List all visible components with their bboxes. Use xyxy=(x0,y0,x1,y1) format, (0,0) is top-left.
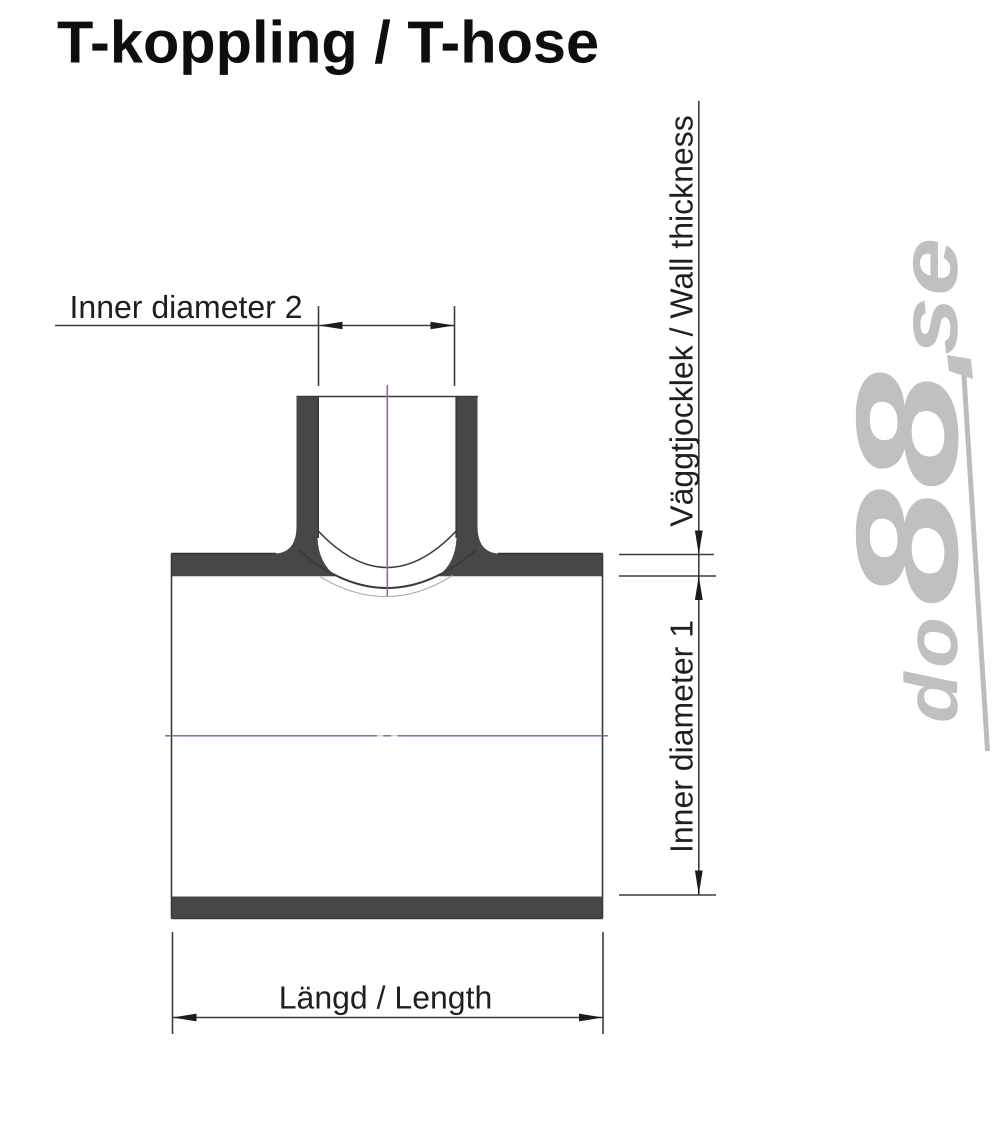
svg-text:T-koppling / T-hose: T-koppling / T-hose xyxy=(57,9,599,76)
svg-text:se: se xyxy=(884,237,975,355)
svg-text:Längd / Length: Längd / Length xyxy=(279,980,493,1016)
svg-text:do: do xyxy=(890,613,973,723)
svg-text:Väggtjocklek / Wall thickness: Väggtjocklek / Wall thickness xyxy=(664,115,700,526)
svg-text:Inner diameter 2: Inner diameter 2 xyxy=(70,289,303,325)
svg-text:Inner diameter 1: Inner diameter 1 xyxy=(664,620,700,853)
